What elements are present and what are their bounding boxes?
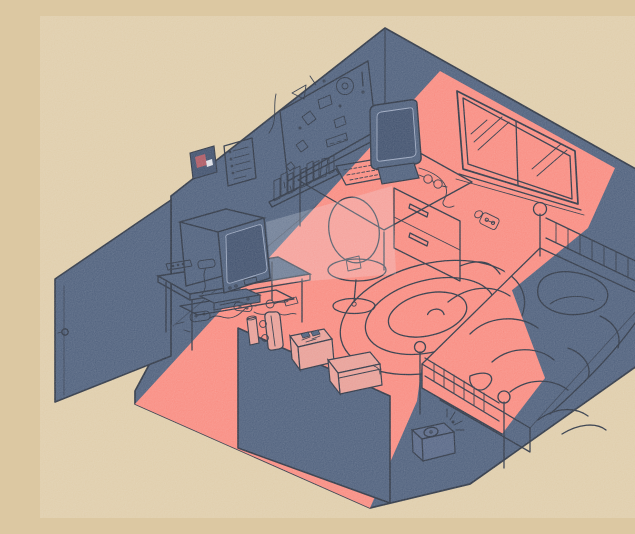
illustration-canvas <box>40 16 635 518</box>
paper-grain <box>40 16 635 518</box>
bedroom-illustration: Flat-color isometric cutaway illustratio… <box>40 16 635 518</box>
